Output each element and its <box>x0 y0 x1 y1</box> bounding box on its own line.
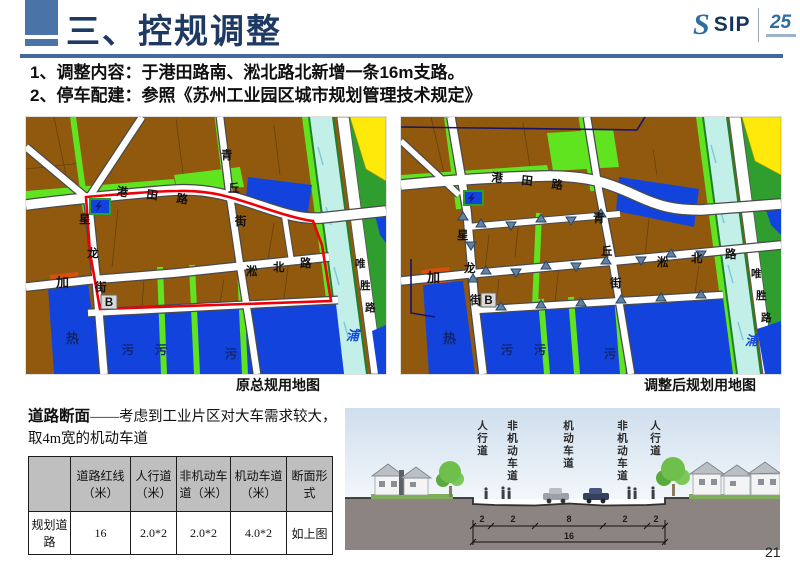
svg-text:胜: 胜 <box>359 279 371 292</box>
cell-bike-lane: 2.0*2 <box>177 512 231 555</box>
road-cross-section-image: 人行道 非机动车道 机动车道 非机动车道 人行道 2 2 8 2 2 16 <box>345 408 780 555</box>
svg-text:路: 路 <box>761 311 772 324</box>
svg-text:港: 港 <box>491 170 504 185</box>
svg-text:丘: 丘 <box>601 245 613 258</box>
anniversary-mark: 25 <box>766 14 796 37</box>
title-accent-bar <box>25 0 58 46</box>
page-number: 21 <box>765 544 781 560</box>
bullet-list: 1、调整内容：于港田路南、淞北路北新增一条16m支路。 2、停车配建：参照《苏州… <box>30 61 481 107</box>
svg-text:街: 街 <box>234 214 247 228</box>
svg-text:街: 街 <box>469 293 482 307</box>
col-header: 非机动车道（米） <box>177 457 231 512</box>
svg-text:非机动车道: 非机动车道 <box>616 419 628 482</box>
svg-text:2: 2 <box>622 514 627 524</box>
svg-text:人行道: 人行道 <box>476 419 488 457</box>
logo-fineprint <box>766 34 796 37</box>
caption-original-map: 原总规用地图 <box>236 375 320 395</box>
svg-text:唯: 唯 <box>355 257 366 270</box>
svg-text:龙: 龙 <box>86 246 99 260</box>
svg-text:B: B <box>484 295 492 307</box>
svg-text:淞: 淞 <box>657 255 669 269</box>
col-header: 断面形式 <box>287 457 333 512</box>
svg-text:青: 青 <box>221 148 233 162</box>
svg-text:污: 污 <box>534 342 546 357</box>
col-header: 机动车道（米） <box>231 457 287 512</box>
svg-text:路: 路 <box>365 301 376 314</box>
col-header <box>29 457 71 512</box>
svg-text:16: 16 <box>564 531 574 541</box>
table-row: 规划道路 16 2.0*2 2.0*2 4.0*2 如上图 <box>29 512 333 555</box>
landuse-map-adjusted: 港 田 路 青 丘 街 星 龙 街 淞 北 路 唯 胜 路 加 热 污 污 污 … <box>400 116 782 375</box>
svg-text:2: 2 <box>479 514 484 524</box>
cell-sidewalk: 2.0*2 <box>131 512 177 555</box>
svg-text:龙: 龙 <box>463 261 476 275</box>
svg-text:2: 2 <box>653 514 658 524</box>
svg-text:非机动车道: 非机动车道 <box>506 419 518 482</box>
svg-text:星: 星 <box>457 229 469 242</box>
svg-text:热: 热 <box>443 331 456 346</box>
svg-text:污: 污 <box>604 346 616 361</box>
svg-text:街: 街 <box>609 276 622 290</box>
svg-text:热: 热 <box>66 331 79 346</box>
svg-text:加: 加 <box>426 270 440 285</box>
svg-text:加: 加 <box>55 275 69 290</box>
page-title: 三、控规调整 <box>66 4 282 53</box>
svg-text:路: 路 <box>551 177 564 192</box>
slide: 三、控规调整 S SIP 25 1、调整内容：于港田路南、淞北路北新增一条16m… <box>0 0 800 565</box>
svg-text:2: 2 <box>510 514 515 524</box>
svg-text:青: 青 <box>593 211 605 225</box>
sip-logo: S SIP 25 <box>693 8 796 42</box>
svg-text:污: 污 <box>501 342 513 357</box>
header-rule <box>20 54 783 58</box>
svg-text:路: 路 <box>300 256 312 270</box>
landuse-map-original: 港 田 路 青 丘 街 星 龙 街 淞 北 路 唯 胜 路 加 热 污 污 污 … <box>25 116 387 375</box>
sip-logo-text: SIP <box>714 13 751 37</box>
svg-text:街: 街 <box>94 280 107 294</box>
bullet-1: 1、调整内容：于港田路南、淞北路北新增一条16m支路。 <box>30 61 481 84</box>
svg-text:星: 星 <box>79 213 91 226</box>
svg-text:田: 田 <box>521 174 534 188</box>
col-header: 人行道（米） <box>131 457 177 512</box>
svg-text:污: 污 <box>155 342 167 357</box>
svg-text:田: 田 <box>146 188 159 202</box>
svg-text:胜: 胜 <box>755 289 767 302</box>
svg-text:8: 8 <box>566 514 571 524</box>
road-section-note: 道路断面——考虑到工业片区对大车需求较大，取4m宽的机动车道 <box>28 405 348 451</box>
table-header-row: 道路红线（米） 人行道（米） 非机动车道（米） 机动车道（米） 断面形式 <box>29 457 333 512</box>
svg-text:北: 北 <box>273 260 285 274</box>
cell-section-form: 如上图 <box>287 512 333 555</box>
svg-text:丘: 丘 <box>228 182 240 195</box>
caption-adjusted-map: 调整后规划用地图 <box>644 375 756 395</box>
road-section-heading: 道路断面 <box>28 408 90 425</box>
svg-text:人行道: 人行道 <box>649 419 661 457</box>
svg-text:污: 污 <box>225 346 237 361</box>
col-header: 道路红线（米） <box>71 457 131 512</box>
svg-text:淞: 淞 <box>246 264 258 278</box>
bullet-2: 2、停车配建：参照《苏州工业园区城市规划管理技术规定》 <box>30 84 481 107</box>
logo-divider <box>758 8 759 42</box>
cell-motor-lane: 4.0*2 <box>231 512 287 555</box>
row-label: 规划道路 <box>29 512 71 555</box>
road-spec-table: 道路红线（米） 人行道（米） 非机动车道（米） 机动车道（米） 断面形式 规划道… <box>28 456 333 555</box>
svg-text:机动车道: 机动车道 <box>562 419 574 470</box>
svg-text:路: 路 <box>725 247 737 261</box>
sip-logo-icon: S <box>693 8 710 42</box>
svg-text:唯: 唯 <box>751 267 762 280</box>
svg-text:北: 北 <box>691 251 703 265</box>
cell-red-line: 16 <box>71 512 131 555</box>
svg-text:污: 污 <box>122 342 134 357</box>
svg-text:B: B <box>105 297 113 309</box>
